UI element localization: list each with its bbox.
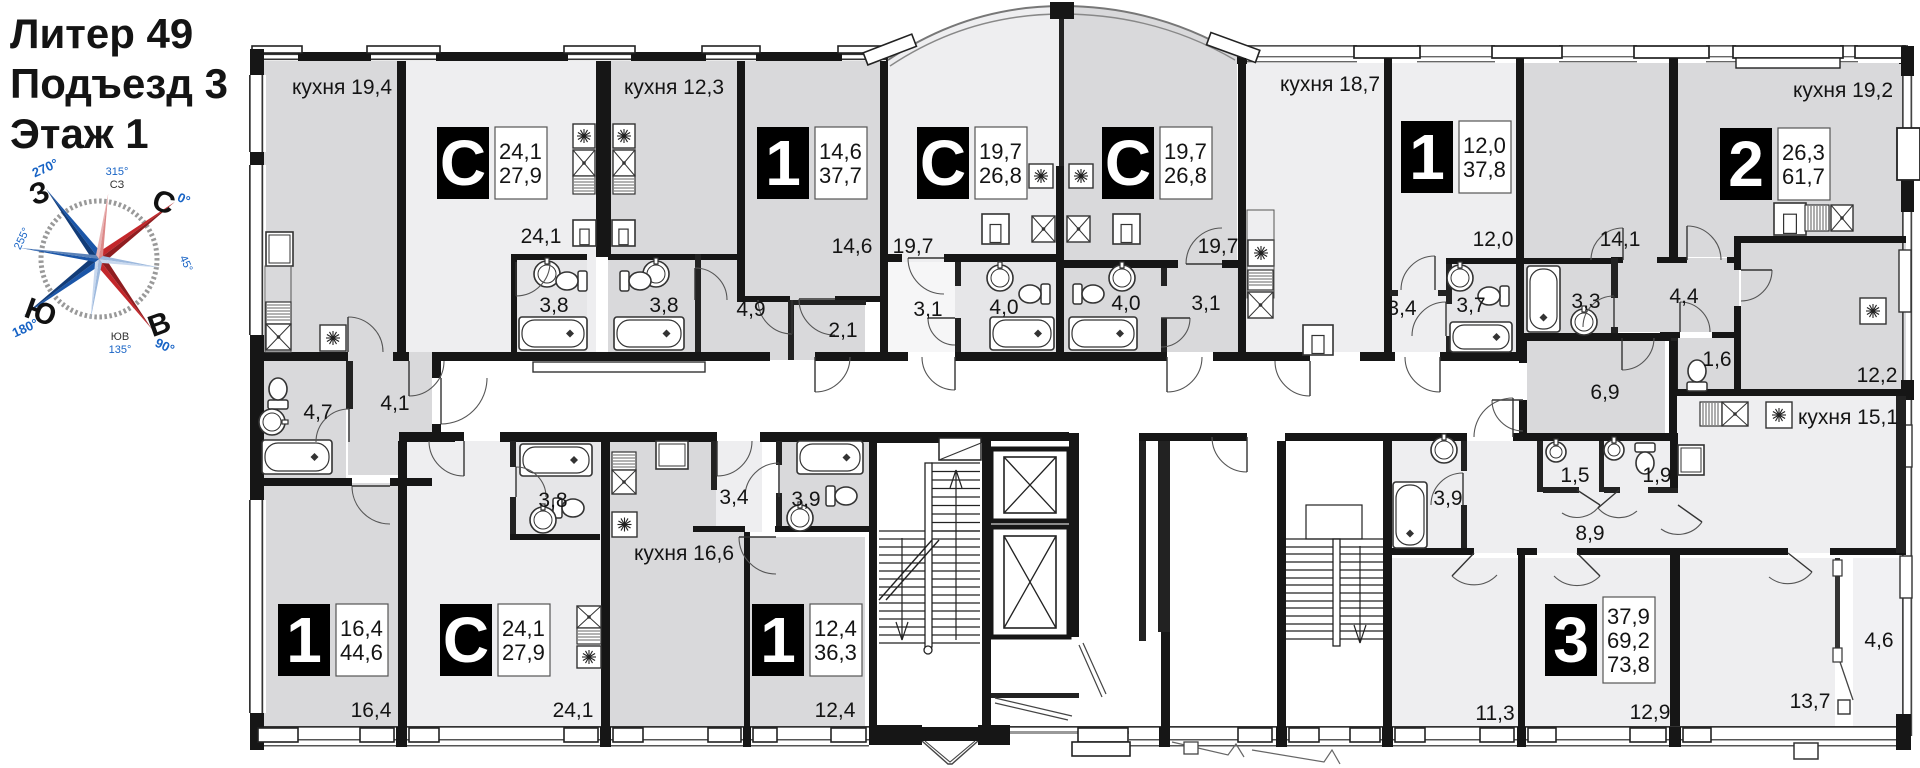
svg-text:C: C	[920, 127, 966, 199]
svg-text:3,9: 3,9	[791, 488, 820, 511]
svg-text:кухня 12,3: кухня 12,3	[624, 76, 724, 99]
svg-text:1: 1	[765, 127, 801, 199]
svg-text:1: 1	[286, 604, 322, 676]
svg-text:24,1: 24,1	[499, 139, 542, 164]
svg-text:12,4: 12,4	[815, 699, 856, 722]
svg-text:26,3: 26,3	[1782, 140, 1825, 165]
svg-text:19,7: 19,7	[893, 235, 934, 258]
svg-text:Этаж 1: Этаж 1	[10, 110, 149, 157]
svg-text:4,0: 4,0	[1111, 292, 1140, 315]
svg-text:кухня 15,1: кухня 15,1	[1798, 406, 1898, 429]
svg-text:6,9: 6,9	[1590, 381, 1619, 404]
svg-text:12,0: 12,0	[1463, 133, 1506, 158]
svg-text:36,3: 36,3	[814, 640, 857, 665]
svg-text:кухня 16,6: кухня 16,6	[634, 542, 734, 565]
svg-text:2: 2	[1728, 128, 1764, 200]
svg-text:кухня 19,2: кухня 19,2	[1793, 79, 1893, 102]
svg-text:3,8: 3,8	[539, 294, 568, 317]
svg-text:3: 3	[1553, 604, 1589, 676]
svg-text:37,9: 37,9	[1607, 604, 1650, 629]
svg-text:4,7: 4,7	[303, 401, 332, 424]
svg-text:69,2: 69,2	[1607, 628, 1650, 653]
svg-text:C: C	[443, 604, 489, 676]
svg-text:26,8: 26,8	[1164, 163, 1207, 188]
svg-text:3,7: 3,7	[1456, 294, 1485, 317]
svg-text:4,1: 4,1	[380, 392, 409, 415]
svg-text:12,9: 12,9	[1630, 701, 1671, 724]
svg-text:ЮВ: ЮВ	[111, 331, 129, 343]
svg-text:Подъезд 3: Подъезд 3	[10, 60, 228, 107]
svg-text:4,9: 4,9	[736, 298, 765, 321]
svg-text:12,0: 12,0	[1473, 228, 1514, 251]
svg-text:19,7: 19,7	[979, 139, 1022, 164]
svg-text:61,7: 61,7	[1782, 164, 1825, 189]
svg-text:кухня 18,7: кухня 18,7	[1280, 73, 1380, 96]
svg-text:3,8: 3,8	[538, 489, 567, 512]
svg-text:кухня 19,4: кухня 19,4	[292, 76, 392, 99]
svg-text:19,7: 19,7	[1164, 139, 1207, 164]
svg-text:1,6: 1,6	[1702, 348, 1731, 371]
svg-text:4,4: 4,4	[1669, 285, 1699, 308]
svg-text:26,8: 26,8	[979, 163, 1022, 188]
svg-text:14,6: 14,6	[819, 139, 862, 164]
svg-text:44,6: 44,6	[340, 640, 383, 665]
svg-text:C: C	[440, 127, 486, 199]
svg-text:3,1: 3,1	[1191, 292, 1220, 315]
svg-text:3,1: 3,1	[913, 298, 942, 321]
svg-text:315°: 315°	[106, 166, 129, 178]
svg-text:Литер 49: Литер 49	[10, 10, 193, 57]
svg-text:24,1: 24,1	[502, 616, 545, 641]
svg-text:1,9: 1,9	[1642, 464, 1671, 487]
svg-text:19,7: 19,7	[1198, 235, 1239, 258]
svg-text:1: 1	[760, 604, 796, 676]
svg-text:27,9: 27,9	[502, 640, 545, 665]
svg-text:16,4: 16,4	[340, 616, 383, 641]
svg-text:24,1: 24,1	[521, 225, 562, 248]
svg-text:27,9: 27,9	[499, 163, 542, 188]
svg-text:37,7: 37,7	[819, 163, 862, 188]
svg-text:24,1: 24,1	[553, 699, 594, 722]
svg-text:14,6: 14,6	[832, 235, 873, 258]
svg-text:12,2: 12,2	[1857, 364, 1898, 387]
svg-text:1,5: 1,5	[1560, 464, 1589, 487]
svg-text:2,1: 2,1	[828, 319, 857, 342]
svg-text:3,4: 3,4	[719, 486, 749, 509]
svg-text:8,9: 8,9	[1575, 522, 1604, 545]
svg-text:37,8: 37,8	[1463, 157, 1506, 182]
svg-text:14,1: 14,1	[1600, 228, 1641, 251]
svg-text:3,3: 3,3	[1571, 290, 1600, 313]
svg-text:12,4: 12,4	[814, 616, 857, 641]
svg-text:1: 1	[1409, 121, 1445, 193]
svg-text:135°: 135°	[109, 344, 132, 356]
svg-text:3,4: 3,4	[1387, 297, 1417, 320]
svg-text:11,3: 11,3	[1475, 702, 1514, 725]
svg-text:4,6: 4,6	[1864, 629, 1893, 652]
svg-text:13,7: 13,7	[1790, 690, 1831, 713]
svg-text:3,8: 3,8	[649, 294, 678, 317]
svg-text:C: C	[1105, 127, 1151, 199]
svg-text:3,9: 3,9	[1433, 487, 1462, 510]
svg-text:СЗ: СЗ	[110, 179, 125, 191]
svg-text:4,0: 4,0	[989, 296, 1018, 319]
svg-text:73,8: 73,8	[1607, 652, 1650, 677]
svg-text:16,4: 16,4	[351, 699, 392, 722]
